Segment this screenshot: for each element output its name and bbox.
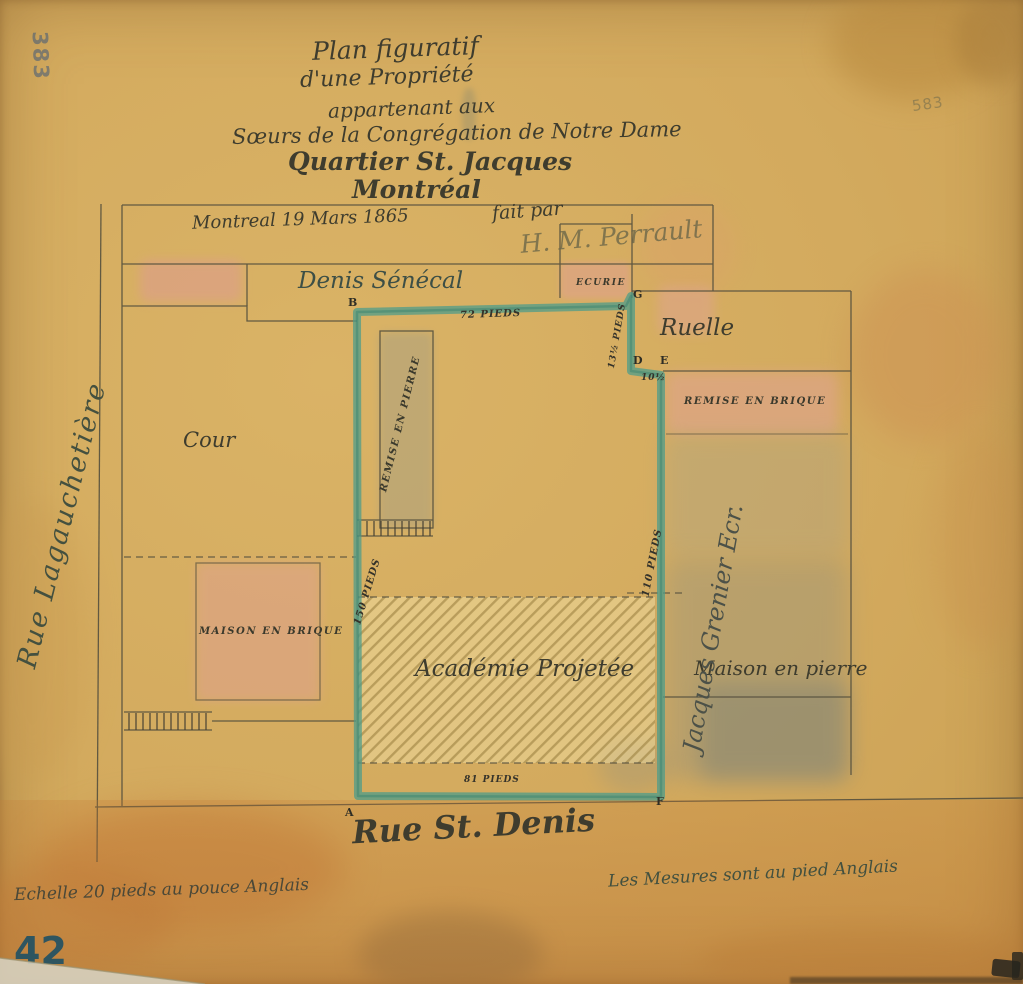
archive-stamp-right-edge: 583 [911, 95, 944, 114]
fence-ticks-southwest [124, 713, 212, 730]
corner-f: F [656, 796, 664, 807]
stable-label: ECURIE [576, 279, 626, 288]
title-line-3: appartenant aux [328, 95, 496, 121]
title-line-6: Montréal [352, 177, 481, 202]
title-line-1: Plan figuratif [312, 33, 479, 64]
edge-mark-3 [790, 977, 1023, 984]
title-line-2: d'une Propriété [300, 64, 474, 92]
sheet-number: 42 [14, 932, 67, 970]
measure-south: 81 PIEDS [464, 776, 520, 785]
title-line-5: Quartier St. Jacques [288, 149, 572, 174]
fait-par-label: fait par [491, 200, 563, 224]
corner-g: G [633, 289, 642, 300]
measure-north: 72 PIEDS [460, 309, 521, 321]
measure-jog-horizontal: 10½ [641, 374, 666, 383]
brick-shed-label: REMISE EN BRIQUE [684, 397, 826, 407]
academy-label: Académie Projetée [415, 658, 634, 681]
fence-ticks-shed [357, 521, 433, 536]
plan-sheet: Plan figuratif d'une Propriété appartena… [0, 0, 1023, 984]
yard-label: Cour [183, 430, 235, 451]
brick-house-label: MAISON EN BRIQUE [199, 627, 343, 637]
corner-b: B [348, 297, 357, 308]
edge-mark-2 [1012, 952, 1023, 980]
neighbor-north-label: Denis Sénécal [298, 270, 463, 293]
corner-e: E [660, 355, 668, 366]
corner-d: D [633, 355, 643, 366]
archive-stamp-top-left: 383 [29, 31, 52, 82]
corner-a: A [345, 807, 354, 818]
alley-label: Ruelle [660, 317, 734, 340]
